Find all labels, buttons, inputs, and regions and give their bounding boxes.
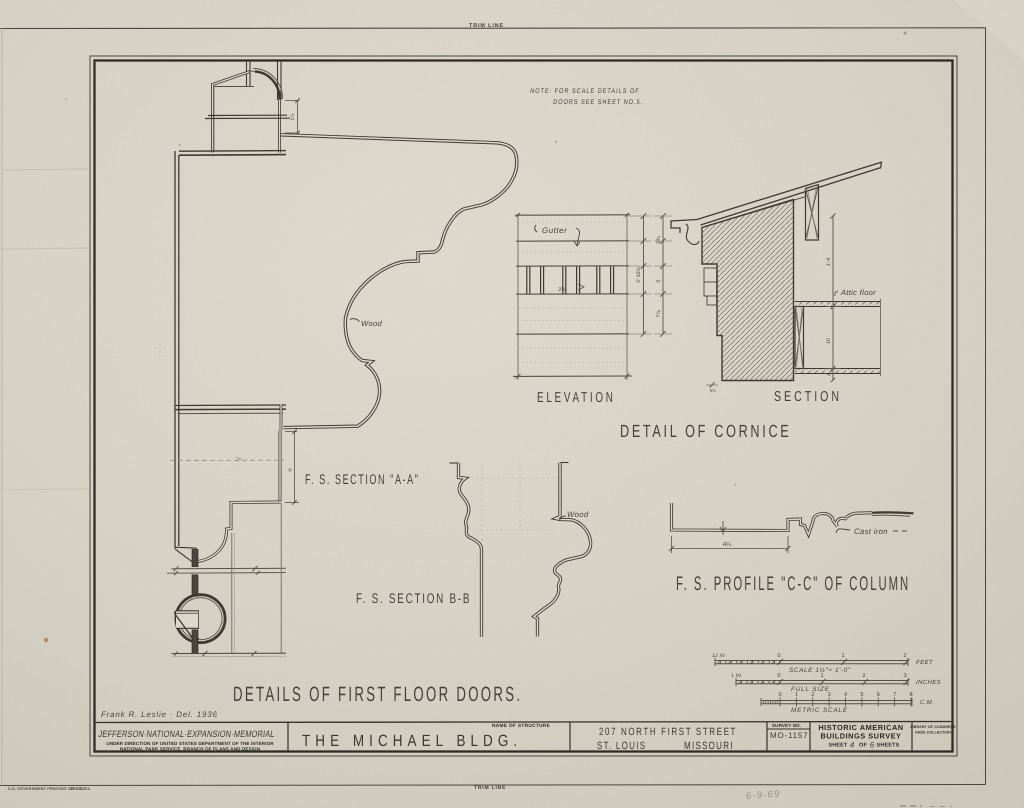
svg-text:SECTION: SECTION [774, 388, 842, 405]
svg-text:TRIM LINE: TRIM LINE [474, 785, 506, 791]
svg-text:OF: OF [859, 743, 867, 749]
svg-text:2: 2 [903, 653, 906, 659]
svg-text:3: 3 [828, 692, 831, 698]
svg-text:F. S. PROFILE "C-C" OF COLUMN: F. S. PROFILE "C-C" OF COLUMN [676, 573, 910, 595]
svg-text:4¼: 4¼ [723, 541, 732, 548]
svg-text:C.M.: C.M. [920, 699, 934, 706]
svg-text:NOTE: FOR SCALE DETAILS OF: NOTE: FOR SCALE DETAILS OF [530, 88, 640, 95]
svg-text:9¾: 9¾ [656, 236, 662, 244]
svg-text:1: 1 [841, 653, 844, 659]
svg-text:SURVEY NO.: SURVEY NO. [772, 723, 801, 728]
svg-text:0: 0 [777, 653, 780, 659]
svg-text:3: 3 [903, 673, 906, 679]
svg-text:12 IN: 12 IN [712, 653, 725, 659]
svg-text:7: 7 [893, 692, 896, 698]
svg-text:2: 2 [811, 692, 814, 698]
svg-text:SHEETS: SHEETS [877, 743, 900, 749]
svg-text:Cast iron: Cast iron [854, 527, 888, 536]
svg-text:DETAIL OF CORNICE: DETAIL OF CORNICE [620, 423, 791, 442]
svg-text:0: 0 [777, 673, 780, 679]
svg-text:TRIM LINE: TRIM LINE [469, 23, 504, 29]
svg-text:Frank R. Leslie · Del. 1936: Frank R. Leslie · Del. 1936 [101, 710, 218, 719]
svg-text:1'-4: 1'-4 [826, 258, 832, 267]
svg-text:F. S. SECTION B-B: F. S. SECTION B-B [356, 591, 471, 607]
svg-text:207 NORTH FIRST STREET: 207 NORTH FIRST STREET [599, 727, 737, 739]
svg-text:INCHES: INCHES [916, 679, 941, 686]
svg-text:⅝: ⅝ [288, 468, 293, 472]
svg-text:8: 8 [909, 692, 912, 698]
svg-text:5: 5 [656, 279, 662, 282]
svg-text:1⅞: 1⅞ [290, 113, 296, 121]
svg-text:F. S. SECTION "A-A": F. S. SECTION "A-A" [305, 472, 420, 488]
svg-text:Wood: Wood [567, 510, 589, 519]
svg-text:MO-1157: MO-1157 [770, 731, 808, 740]
svg-text:SHEET: SHEET [829, 743, 848, 749]
svg-text:6: 6 [870, 741, 875, 750]
svg-text:ELEVATION: ELEVATION [537, 389, 616, 406]
svg-text:1 IN: 1 IN [731, 673, 741, 679]
svg-text:16—23264: 16—23264 [70, 786, 91, 791]
svg-text:NATIONAL PARK SERVICE, BRANCH: NATIONAL PARK SERVICE, BRANCH OF PLANS A… [120, 747, 260, 752]
svg-text:FEET: FEET [916, 659, 934, 666]
svg-text:ST. LOUIS: ST. LOUIS [597, 741, 646, 753]
svg-text:4: 4 [844, 692, 847, 698]
svg-text:BUILDINGS SURVEY: BUILDINGS SURVEY [821, 732, 902, 741]
svg-text:HABS COLLECTION: HABS COLLECTION [915, 731, 951, 735]
svg-text:2½: 2½ [558, 287, 566, 293]
svg-text:5: 5 [860, 692, 863, 698]
svg-text:2'-10½: 2'-10½ [636, 266, 642, 282]
svg-text:Wood: Wood [361, 319, 383, 328]
svg-text:0: 0 [778, 692, 781, 698]
svg-text:LIBRARY OF CONGRESS: LIBRARY OF CONGRESS [910, 725, 956, 729]
svg-text:DETAILS OF FIRST FLOOR DOORS.: DETAILS OF FIRST FLOOR DOORS. [233, 682, 522, 706]
svg-text:Gutter: Gutter [542, 226, 567, 235]
svg-text:Attic floor: Attic floor [840, 288, 876, 297]
svg-text:MISSOURI: MISSOURI [684, 741, 734, 753]
svg-text:2: 2 [862, 673, 865, 679]
svg-text:6: 6 [877, 692, 880, 698]
svg-text:DOORS SEE SHEET NO.5.: DOORS SEE SHEET NO.5. [553, 99, 644, 106]
svg-text:5¼: 5¼ [710, 388, 716, 393]
svg-text:UNDER DIRECTION OF UNITED STAT: UNDER DIRECTION OF UNITED STATES DEPARTM… [106, 741, 274, 746]
svg-text:1: 1 [795, 692, 798, 698]
svg-text:METRIC SCALE: METRIC SCALE [791, 707, 848, 714]
svg-text:7⅞: 7⅞ [656, 310, 662, 318]
svg-text:10: 10 [826, 338, 832, 344]
svg-text:THE MICHAEL BLDG.: THE MICHAEL BLDG. [302, 732, 522, 750]
svg-text:1: 1 [820, 673, 823, 679]
svg-text:4: 4 [850, 741, 855, 750]
svg-text:NAME OF STRUCTURE: NAME OF STRUCTURE [492, 723, 551, 729]
svg-text:JEFFERSON·NATIONAL·EXPANSION·M: JEFFERSON·NATIONAL·EXPANSION·MEMORIAL [98, 729, 276, 739]
